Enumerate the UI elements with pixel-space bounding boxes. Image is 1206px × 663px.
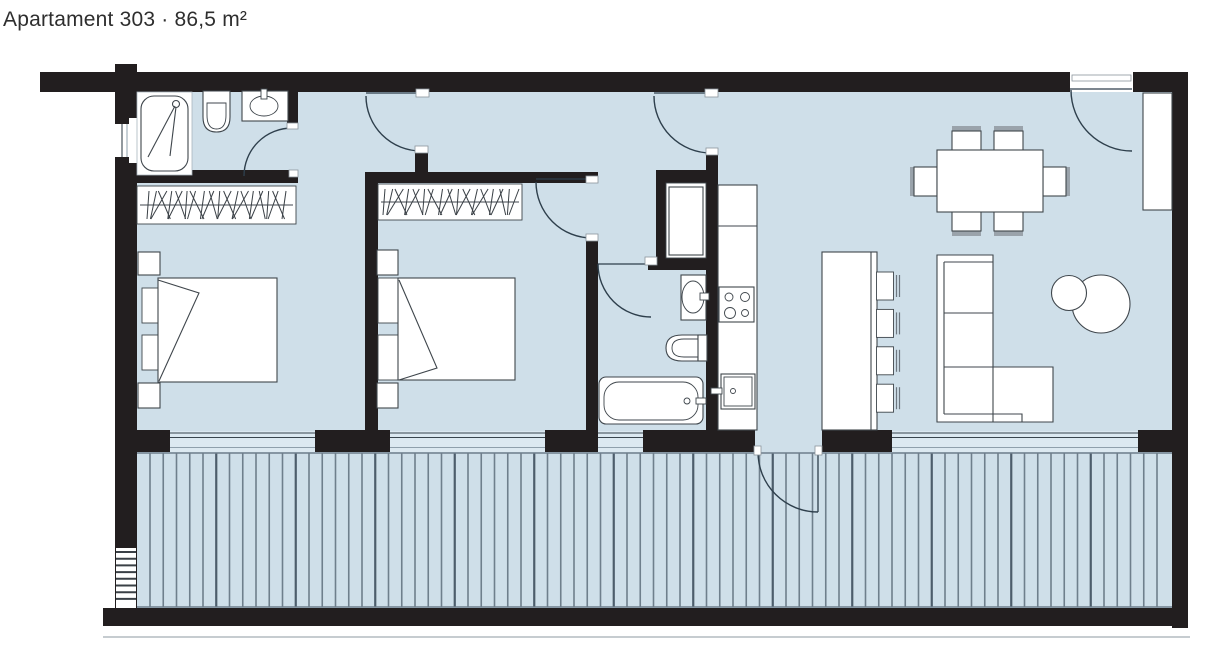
wall-bedroom2-top — [365, 172, 598, 183]
bedroom-1 — [137, 186, 296, 408]
wall-ladder-icon — [116, 548, 136, 608]
nightstand-icon — [138, 252, 160, 275]
washbasin-icon — [681, 275, 709, 320]
pillow-icon — [378, 335, 398, 380]
cooktop-icon — [719, 287, 754, 322]
dining-table-icon — [937, 150, 1043, 212]
chair-icon — [1043, 167, 1066, 196]
nightstand-icon — [377, 250, 398, 275]
floor-plan — [0, 0, 1206, 663]
toilet-icon — [666, 335, 707, 361]
window-segment — [170, 431, 315, 452]
chair-icon — [952, 211, 981, 231]
window-left — [115, 118, 137, 163]
wall-bedroom-divider — [365, 172, 378, 432]
window-segment — [390, 431, 545, 452]
chair-icon — [994, 131, 1023, 151]
wardrobe-icon — [378, 184, 522, 220]
wall-bedroom2-right — [586, 237, 598, 432]
window-segment — [598, 431, 643, 452]
nightstand-icon — [138, 383, 160, 408]
washbasin-icon — [242, 89, 288, 121]
pillow-icon — [378, 278, 398, 323]
bedroom-2 — [377, 184, 522, 408]
bathtub-icon — [599, 377, 706, 424]
pillow-icon — [142, 288, 158, 323]
chair-icon — [994, 211, 1023, 231]
wall-closet-left — [656, 183, 666, 263]
chair-icon — [914, 167, 937, 196]
window-segment — [892, 431, 1138, 452]
shower-icon — [137, 92, 192, 175]
chair-icon — [952, 131, 981, 151]
floor-plan-page: Apartament 303 · 86,5 m² — [0, 0, 1206, 663]
entry-closet — [666, 183, 706, 258]
nightstand-icon — [377, 383, 398, 408]
pillow-icon — [142, 335, 158, 370]
wardrobe-icon — [137, 186, 296, 224]
tall-cabinet-icon — [1143, 93, 1172, 210]
toilet-icon — [203, 91, 230, 132]
